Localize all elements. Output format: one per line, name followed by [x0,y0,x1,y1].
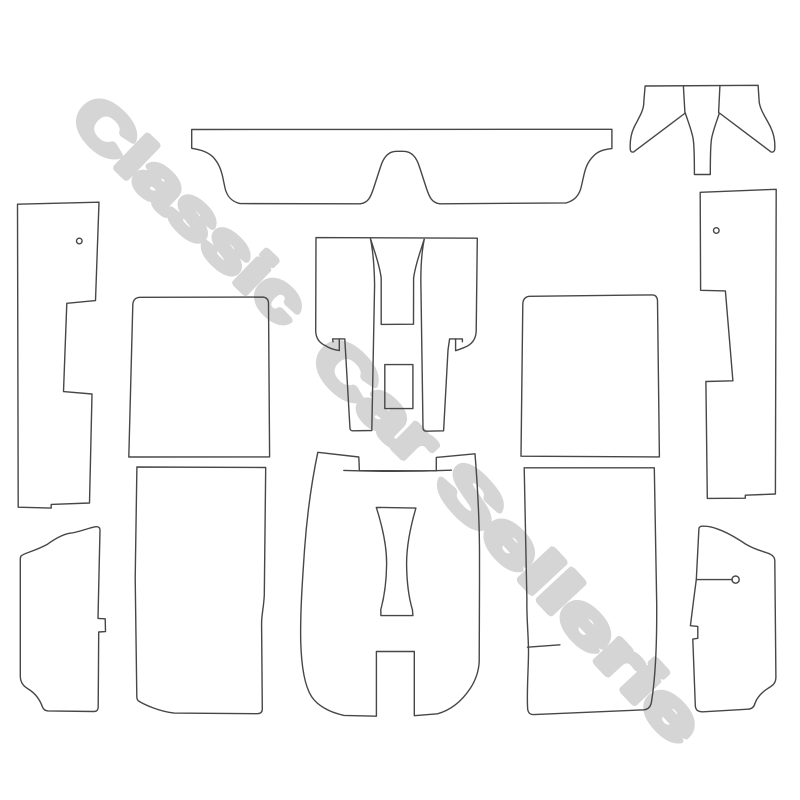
svg-text:Sellerie: Sellerie [422,449,716,757]
svg-text:Car: Car [298,324,452,478]
